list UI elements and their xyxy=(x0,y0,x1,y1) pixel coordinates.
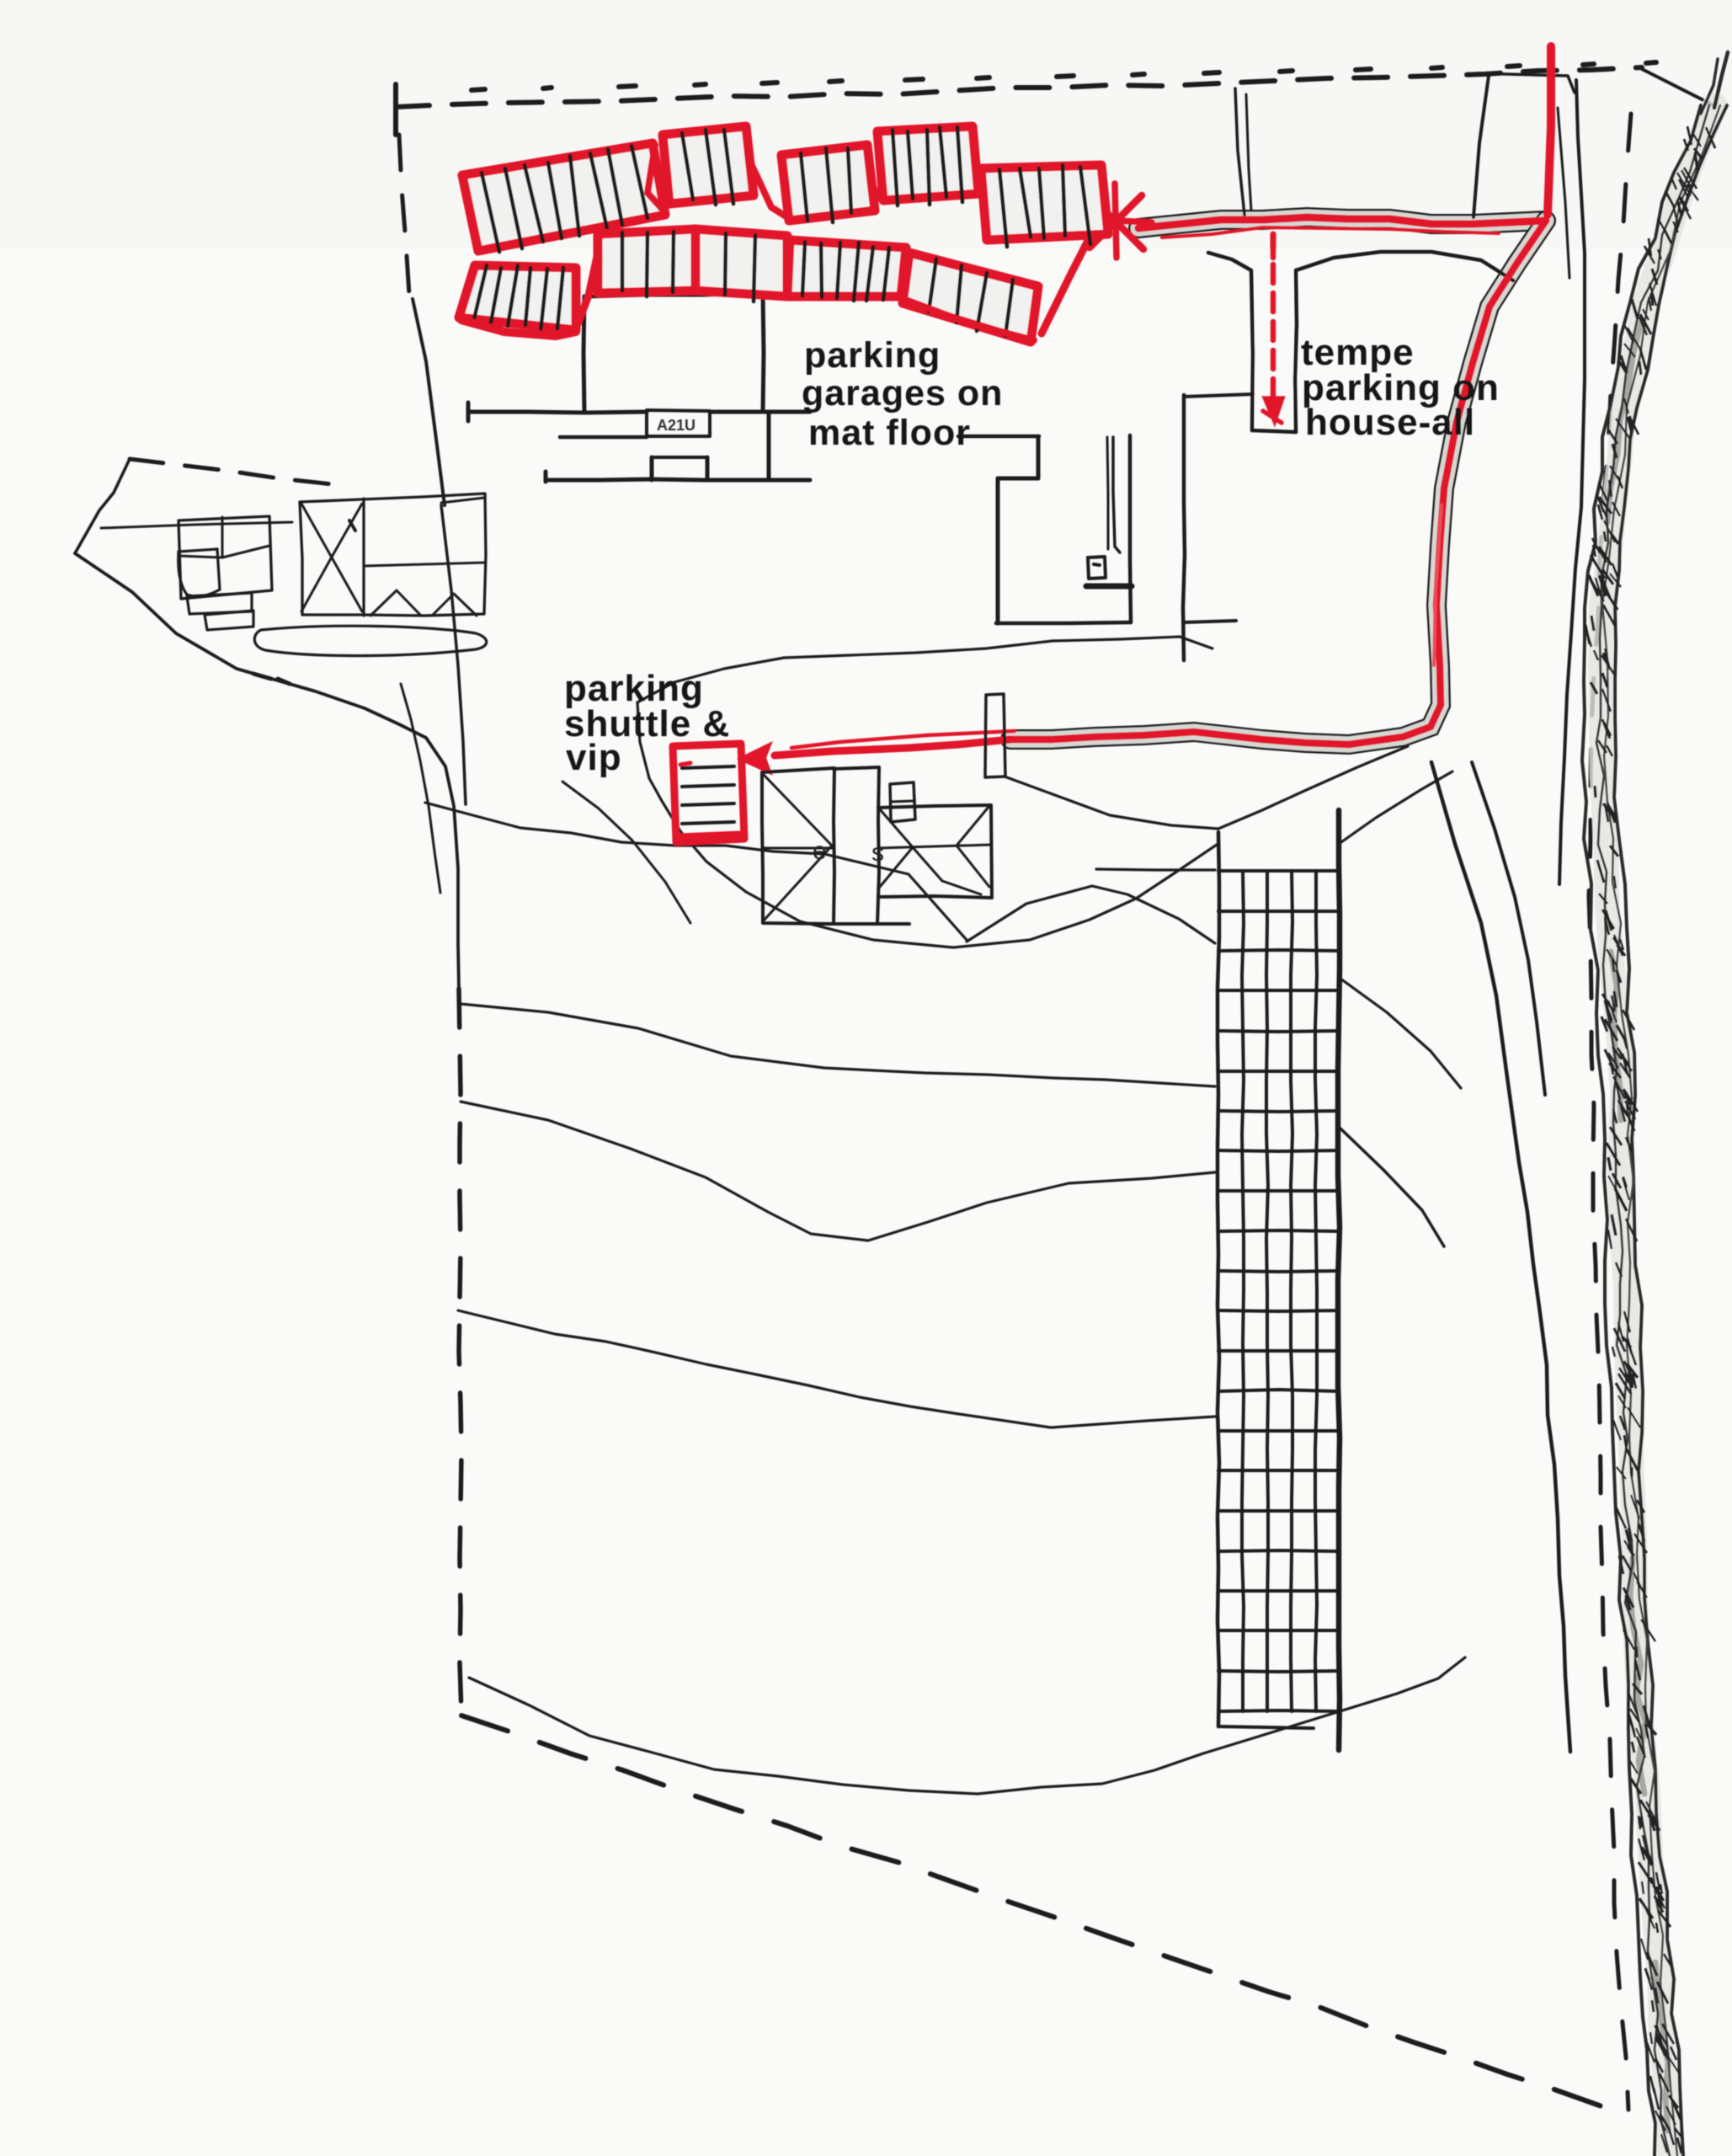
svg-text:s: s xyxy=(871,839,884,867)
svg-text:mat floor: mat floor xyxy=(808,413,971,453)
svg-text:A21U: A21U xyxy=(657,417,695,434)
svg-text:house-all: house-all xyxy=(1305,402,1475,443)
svg-text:garages on: garages on xyxy=(802,373,1003,414)
svg-text:e: e xyxy=(813,837,827,865)
svg-text:vip: vip xyxy=(566,737,622,778)
svg-text:parking: parking xyxy=(804,335,941,376)
